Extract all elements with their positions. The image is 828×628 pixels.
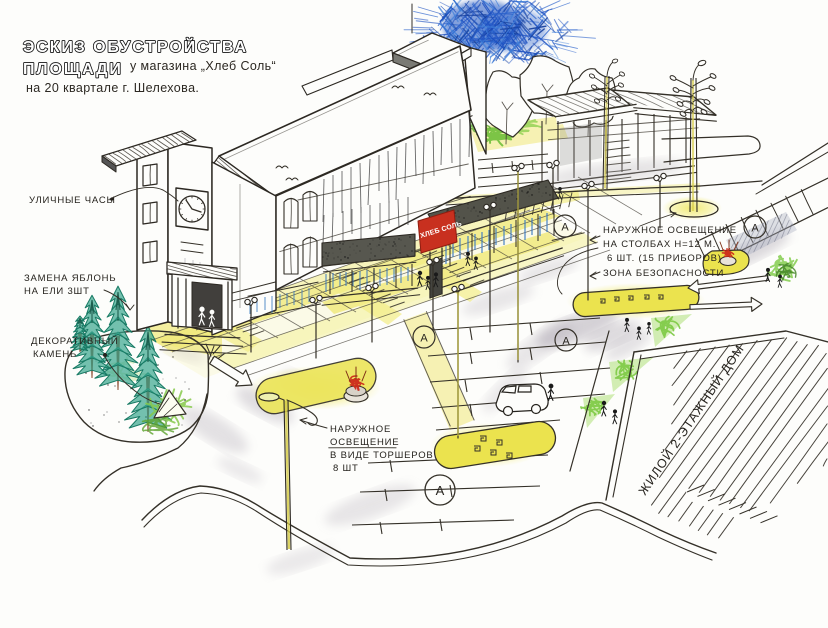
svg-text:на 20 квартале г. Шелехова.: на 20 квартале г. Шелехова. xyxy=(26,81,199,95)
svg-text:ДЕКОРАТИВНЫЙ: ДЕКОРАТИВНЫЙ xyxy=(31,335,119,347)
svg-text:8 ШТ: 8 ШТ xyxy=(333,463,359,474)
svg-text:А: А xyxy=(561,222,569,234)
svg-text:НАРУЖНОЕ: НАРУЖНОЕ xyxy=(330,424,391,435)
svg-text:В ВИДЕ ТОРШЕРОВ: В ВИДЕ ТОРШЕРОВ xyxy=(330,450,434,461)
svg-text:НАРУЖНОЕ ОСВЕЩЕНИЕ: НАРУЖНОЕ ОСВЕЩЕНИЕ xyxy=(603,225,737,236)
svg-text:А: А xyxy=(562,336,570,348)
svg-text:ПЛОЩАДИ: ПЛОЩАДИ xyxy=(23,61,123,78)
svg-text:НА СТОЛБАХ Н=12 М.: НА СТОЛБАХ Н=12 М. xyxy=(603,239,716,250)
svg-text:А: А xyxy=(420,333,428,345)
svg-text:А: А xyxy=(751,223,759,235)
svg-text:КАМЕНЬ: КАМЕНЬ xyxy=(33,349,77,360)
svg-text:6 ШТ. (15 ПРИБОРОВ): 6 ШТ. (15 ПРИБОРОВ) xyxy=(607,253,722,264)
svg-text:ЗОНА БЕЗОПАСНОСТИ: ЗОНА БЕЗОПАСНОСТИ xyxy=(603,268,724,279)
svg-text:НА ЕЛИ 3ШТ: НА ЕЛИ 3ШТ xyxy=(24,286,90,297)
svg-text:А: А xyxy=(436,483,445,498)
svg-text:ЗАМЕНА ЯБЛОНЬ: ЗАМЕНА ЯБЛОНЬ xyxy=(24,273,116,284)
svg-text:ЭСКИЗ ОБУСТРОЙСТВА: ЭСКИЗ ОБУСТРОЙСТВА xyxy=(23,37,248,56)
svg-text:у магазина „Хлеб Соль“: у магазина „Хлеб Соль“ xyxy=(130,59,276,73)
svg-text:ОСВЕЩЕНИЕ: ОСВЕЩЕНИЕ xyxy=(330,437,399,448)
svg-text:УЛИЧНЫЕ ЧАСЫ: УЛИЧНЫЕ ЧАСЫ xyxy=(29,195,116,206)
